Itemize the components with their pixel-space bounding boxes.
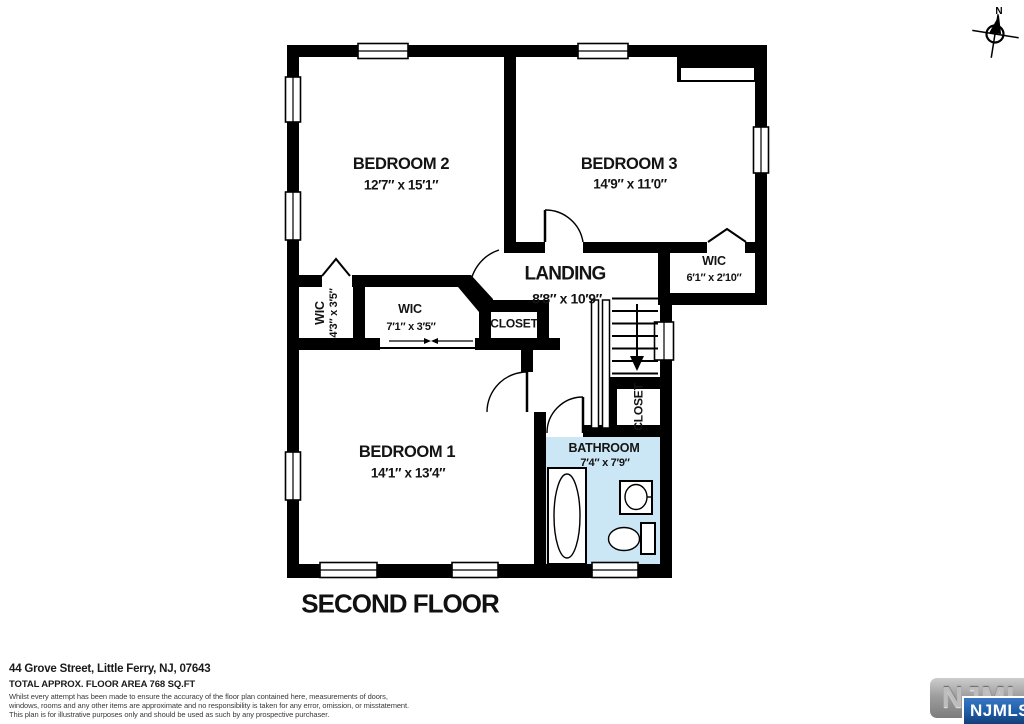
bedroom1-label: BEDROOM 1	[359, 443, 455, 461]
wic-left-dims: 4′3″ x 3′5″	[328, 288, 340, 337]
wall-under-closet	[475, 338, 560, 350]
landing-dims: 8′8″ x 10′9″	[532, 291, 602, 306]
njmls-logo-badge-text: NJMLS	[964, 698, 1024, 723]
wall-under-wic-left	[287, 338, 380, 350]
wall-wic-right-left	[658, 242, 670, 305]
door-arc-bedroom1	[487, 372, 527, 412]
stair-rail-outer	[592, 300, 599, 428]
wall-bedroom3-bottom-left	[504, 242, 545, 253]
staircase	[592, 299, 659, 429]
disclaimer-line-2: windows, rooms and any other items are a…	[9, 701, 409, 710]
bedroom1-dims: 14′1″ x 13′4″	[371, 467, 445, 482]
floor-area-line: TOTAL APPROX. FLOOR AREA 768 SQ.FT	[9, 679, 195, 690]
compass-n-label: N	[995, 6, 1002, 17]
landing-label: LANDING	[525, 265, 606, 286]
toilet-tank	[641, 523, 655, 554]
floorplan-page: N BEDROOM 2 12′7″ x 15′1″ BEDROOM 3 14′9…	[0, 0, 1024, 724]
wall-bedroom1-right	[521, 350, 533, 372]
bedroom3-dims: 14′9″ x 11′0″	[593, 178, 667, 193]
wall-bedroom-divider	[504, 57, 516, 242]
wall-bathroom-left	[534, 412, 546, 578]
wic-right-dims: 6′1″ x 2′10″	[686, 272, 741, 284]
floor-plan-drawing: N	[0, 0, 1024, 724]
wall-bedroom3-bottom-right	[583, 242, 707, 253]
bifold-door-wic-right	[708, 229, 746, 242]
disclaimer: Whilst every attempt has been made to en…	[9, 692, 409, 719]
wic-center-label: WIC	[398, 303, 422, 317]
disclaimer-line-3: This plan is for illustrative purposes o…	[9, 710, 409, 719]
wic-center-dims: 7′1″ x 3′5″	[386, 321, 435, 333]
bedroom2-dims: 12′7″ x 15′1″	[364, 179, 438, 194]
wall-wic-right-bottom	[658, 293, 767, 305]
wall-wic-left-right	[353, 287, 365, 338]
floor-title: SECOND FLOOR	[301, 590, 498, 619]
closet-landing-label: CLOSET	[490, 317, 537, 330]
wic-left-label-block: WIC 4′3″ x 3′5″	[314, 288, 340, 337]
wall-bedroom2-bottom-a	[287, 275, 322, 287]
wall-right-upper	[755, 45, 767, 305]
toilet-bowl	[609, 528, 640, 551]
door-arc-bathroom	[547, 397, 583, 433]
wall-bedroom2-bottom-b	[352, 275, 458, 287]
bedroom2-label: BEDROOM 2	[353, 155, 449, 173]
walls	[287, 45, 767, 578]
compass: N	[969, 6, 1022, 61]
stair-rail-inner	[603, 300, 610, 428]
wall-notch	[681, 68, 754, 80]
sliding-door-arrows	[389, 338, 473, 344]
wall-wic-right-door-stub	[745, 242, 755, 253]
njmls-logo-badge: NJMLS	[962, 696, 1024, 724]
disclaimer-line-1: Whilst every attempt has been made to en…	[9, 692, 409, 701]
bathroom-label: BATHROOM	[568, 442, 639, 456]
wic-right-label: WIC	[702, 255, 726, 269]
bifold-door-wic-left	[322, 259, 350, 276]
address-line: 44 Grove Street, Little Ferry, NJ, 07643	[9, 663, 210, 675]
compass-needle	[989, 14, 1004, 35]
closet-hall-label: CLOSET	[632, 383, 645, 430]
bathroom-dims: 7′4″ x 7′9″	[580, 457, 629, 469]
bedroom3-label: BEDROOM 3	[581, 155, 677, 173]
wic-left-label: WIC	[314, 288, 328, 337]
door-arc-bedroom3	[545, 210, 583, 242]
